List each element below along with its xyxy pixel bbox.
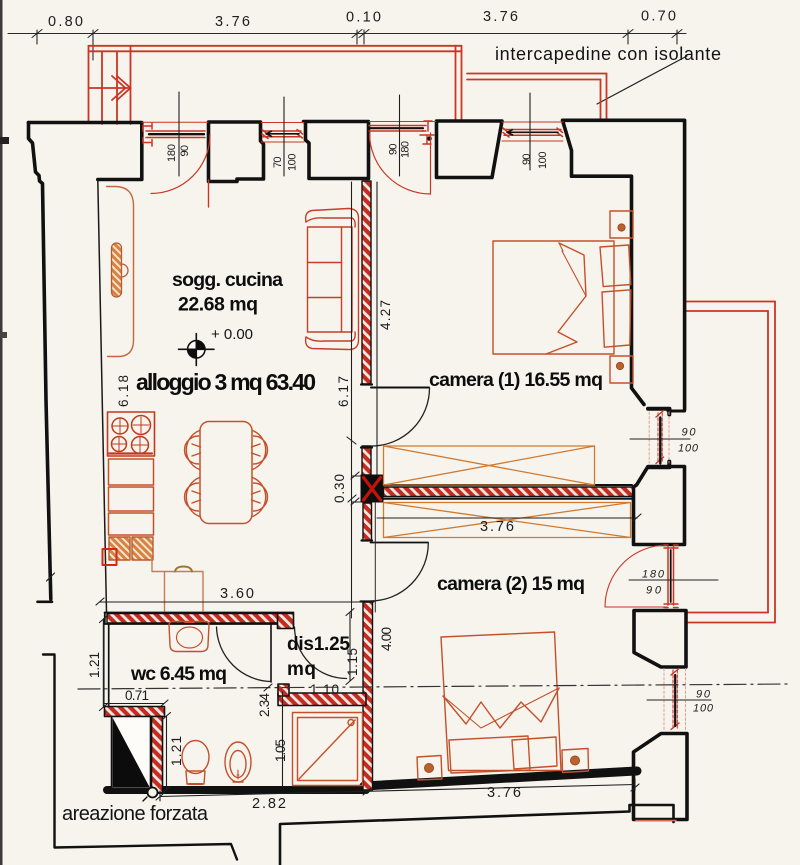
svg-text:90: 90 bbox=[388, 144, 400, 156]
svg-text:6.18: 6.18 bbox=[116, 375, 131, 407]
svg-text:3.76: 3.76 bbox=[487, 785, 521, 801]
svg-text:100: 100 bbox=[287, 154, 299, 172]
svg-text:180: 180 bbox=[642, 569, 665, 581]
svg-text:180: 180 bbox=[400, 141, 412, 158]
svg-text:0.80: 0.80 bbox=[48, 14, 83, 30]
svg-text:dis1.25: dis1.25 bbox=[287, 634, 350, 655]
svg-text:4.27: 4.27 bbox=[378, 300, 393, 330]
svg-text:intercapedine con isolante: intercapedine con isolante bbox=[495, 44, 721, 64]
svg-text:4.00: 4.00 bbox=[379, 627, 394, 651]
svg-text:90: 90 bbox=[179, 145, 191, 157]
svg-text:100: 100 bbox=[537, 152, 549, 170]
svg-text:areazione forzata: areazione forzata bbox=[62, 803, 209, 825]
svg-text:3.76: 3.76 bbox=[480, 519, 514, 535]
svg-text:3.76: 3.76 bbox=[215, 14, 250, 30]
svg-text:6.17: 6.17 bbox=[336, 376, 351, 407]
svg-text:1.10: 1.10 bbox=[310, 682, 339, 697]
svg-text:90: 90 bbox=[521, 154, 533, 166]
svg-text:0.70: 0.70 bbox=[641, 9, 676, 25]
svg-text:sogg. cucina: sogg. cucina bbox=[172, 269, 283, 291]
svg-text:1.21: 1.21 bbox=[169, 736, 184, 766]
svg-text:1.05: 1.05 bbox=[273, 739, 288, 762]
svg-text:90: 90 bbox=[646, 585, 662, 597]
svg-text:camera (1) 16.55 mq: camera (1) 16.55 mq bbox=[429, 369, 603, 391]
svg-text:camera (2) 15 mq: camera (2) 15 mq bbox=[437, 573, 585, 595]
svg-text:100: 100 bbox=[678, 443, 699, 455]
svg-text:100: 100 bbox=[693, 703, 714, 715]
svg-text:90: 90 bbox=[696, 689, 711, 701]
svg-text:2.34: 2.34 bbox=[257, 693, 272, 717]
svg-text:mq: mq bbox=[287, 659, 316, 680]
svg-text:3.60: 3.60 bbox=[220, 586, 254, 602]
svg-text:70: 70 bbox=[272, 157, 284, 169]
svg-text:2.82: 2.82 bbox=[252, 796, 286, 812]
svg-text:3.76: 3.76 bbox=[483, 9, 518, 25]
svg-text:180: 180 bbox=[166, 144, 178, 162]
svg-text:0.30: 0.30 bbox=[332, 474, 347, 503]
svg-text:wc 6.45 mq: wc 6.45 mq bbox=[130, 663, 227, 685]
svg-text:1.21: 1.21 bbox=[87, 652, 102, 678]
svg-text:90: 90 bbox=[682, 427, 697, 439]
svg-text:0.10: 0.10 bbox=[346, 10, 381, 26]
svg-text:22.68 mq: 22.68 mq bbox=[178, 294, 258, 316]
svg-text:alloggio 3 mq 63.40: alloggio 3 mq 63.40 bbox=[136, 369, 316, 395]
svg-text:1.15: 1.15 bbox=[345, 648, 360, 676]
svg-text:+ 0.00: + 0.00 bbox=[211, 326, 253, 343]
svg-text:0.71: 0.71 bbox=[125, 688, 149, 703]
